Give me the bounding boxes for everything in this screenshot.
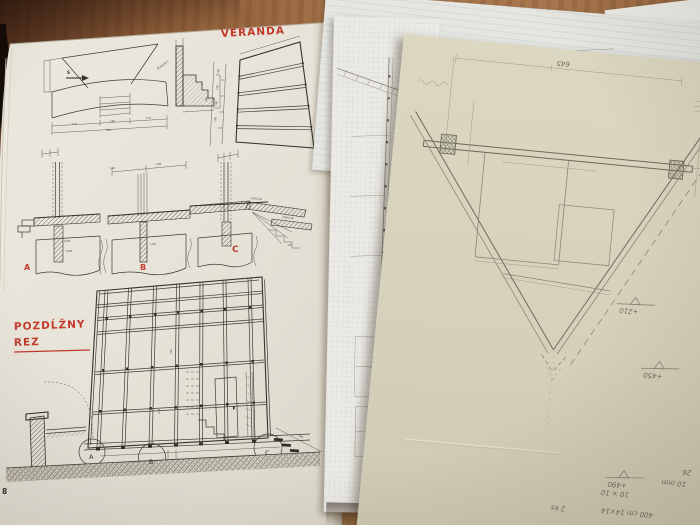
section-title-line2: REZ	[14, 336, 40, 349]
detail-c-label: C	[232, 245, 240, 255]
handwritten-note: 10 mm	[661, 478, 687, 488]
circle-label-b: B	[149, 458, 153, 466]
detail-dim: 23	[288, 243, 292, 247]
sketch-v-braces	[382, 106, 700, 441]
paper-crease	[405, 438, 559, 454]
handwritten-note: 400 cm 14×14	[601, 506, 654, 519]
handwritten-note: 26	[681, 468, 691, 477]
plan-dim: 175	[146, 116, 151, 120]
photo-scene: VERANDA 175 140 175 600 S	[0, 0, 700, 525]
elevation-mark	[617, 296, 656, 308]
handwritten-note: 2 ks	[550, 503, 565, 512]
panel-dim: 100	[213, 116, 218, 122]
pencil-sketch: 645	[350, 34, 700, 525]
circle-label-c: C	[265, 449, 270, 457]
elevation-mark	[641, 360, 680, 372]
panel-dim: 100	[215, 84, 220, 90]
section-title-line1: POZDĹŽNY	[14, 318, 86, 333]
plan-dim: 140	[110, 119, 115, 123]
elevation-value: +450	[642, 370, 662, 380]
plan-dim: 600	[106, 128, 111, 132]
north-arrow-label: S	[67, 70, 70, 75]
elevation-value: +210	[618, 306, 638, 316]
book-left-page: VERANDA 175 140 175 600 S	[0, 0, 342, 525]
detail-dim: 126	[156, 162, 161, 166]
section-dim: 230	[157, 408, 161, 414]
panel-dim: 100	[216, 68, 221, 74]
tracing-paper-sheet: 645	[350, 34, 700, 525]
page-number: 8	[2, 487, 7, 496]
joint-block-left	[440, 134, 457, 154]
sketch-beam	[423, 132, 700, 186]
section-dim: 210	[169, 348, 173, 354]
panel-dim: 100	[214, 100, 219, 106]
sketch-top-dimension-line	[455, 54, 682, 86]
detail-dim: 5/18	[66, 249, 72, 253]
detail-a-label: A	[24, 263, 31, 272]
detail-dim: 126	[110, 166, 115, 170]
detail-dim: 2/18	[64, 239, 70, 243]
sketch-top-dimension: 645	[556, 59, 571, 68]
detail-dim: 1/16	[150, 242, 156, 246]
plan-dim: 175	[72, 122, 77, 126]
elevation-value: +490	[607, 480, 627, 490]
panel-dim: 390	[204, 96, 209, 102]
detail-b-label: B	[140, 263, 147, 272]
joint-block-right	[668, 160, 684, 179]
sketch-panels	[473, 152, 623, 295]
circle-label-a: A	[89, 453, 94, 461]
elevation-mark	[605, 469, 644, 481]
